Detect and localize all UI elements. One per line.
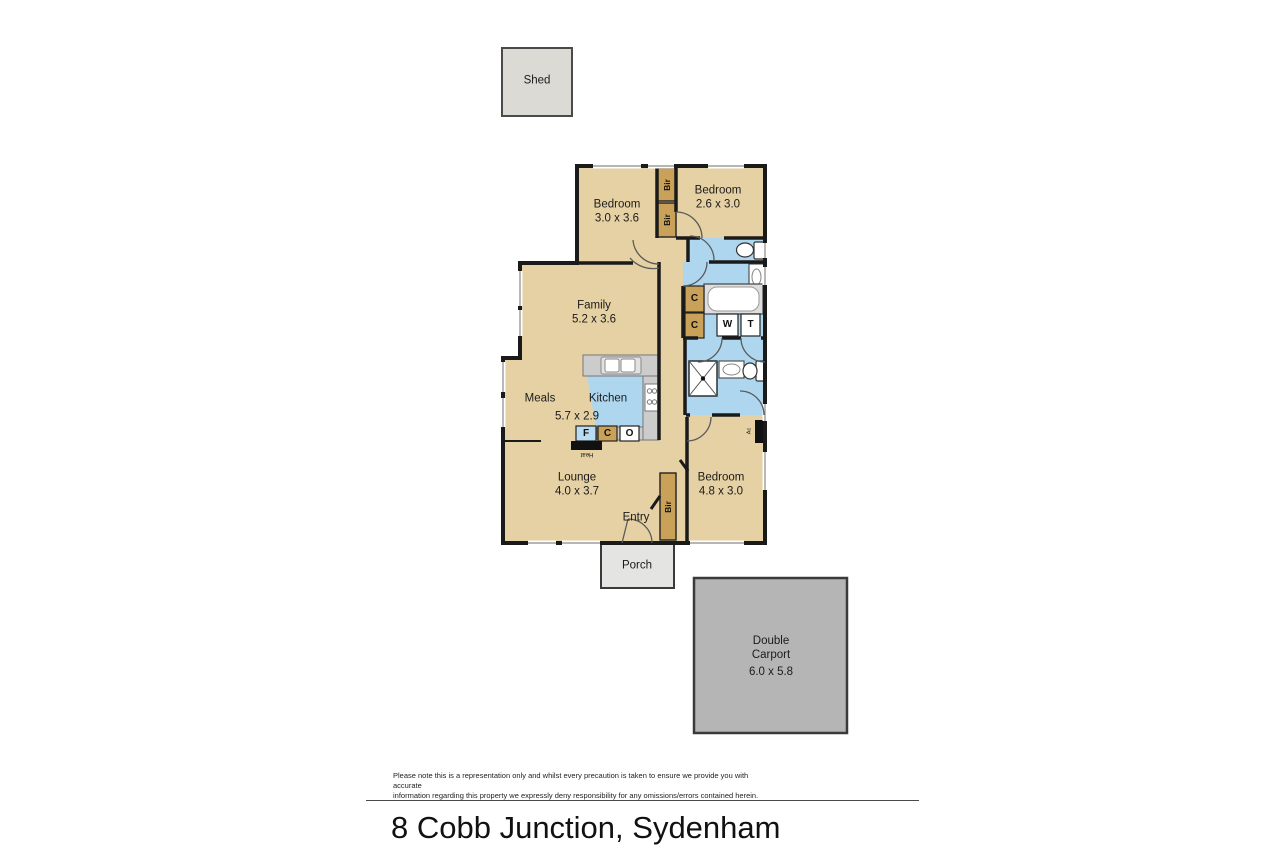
toilet-bathroom2 — [743, 361, 764, 381]
room-dims: 2.6 x 3.0 — [695, 198, 742, 212]
carport-line2: Carport — [749, 648, 793, 662]
room-name: Entry — [623, 511, 650, 525]
room-name: Kitchen — [589, 392, 627, 406]
oven-label: O — [626, 429, 634, 439]
page-title: 8 Cobb Junction, Sydenham — [391, 811, 780, 845]
room-name: Porch — [622, 559, 652, 573]
room-dims: 4.0 x 3.7 — [555, 485, 599, 499]
room-name: Bedroom — [594, 199, 641, 213]
footer-divider — [366, 800, 919, 801]
room-label-kitchen-dims: 5.7 x 2.9 — [555, 410, 599, 424]
trough-label: T — [747, 320, 753, 330]
robe-label: Bir — [662, 179, 671, 191]
shower — [689, 361, 717, 396]
heater-label: Heat — [580, 451, 593, 457]
room-label-bedroom3: Bedroom 4.8 x 3.0 — [698, 472, 745, 499]
robe-label: Bir — [664, 501, 673, 513]
room-label-kitchen: Kitchen — [589, 392, 627, 406]
room-name: Lounge — [555, 472, 599, 486]
kitchen-sink — [601, 357, 641, 374]
carport-label: Double Carport 6.0 x 5.8 — [749, 635, 793, 680]
robe-label: Bir — [662, 214, 671, 226]
floorplan-drawing — [0, 0, 1284, 856]
room-name: Meals — [525, 392, 556, 406]
shed-label: Shed — [524, 74, 551, 88]
room-name: Family — [572, 300, 616, 314]
room-label-meals: Meals — [525, 392, 556, 406]
room-dims: 4.8 x 3.0 — [698, 485, 745, 499]
cooktop — [645, 384, 658, 411]
bathtub — [704, 284, 763, 314]
disclaimer-line1: Please note this is a representation onl… — [393, 771, 773, 791]
carport-line1: Double — [749, 635, 793, 649]
room-name: Shed — [524, 74, 551, 88]
vanity-bathroom2 — [719, 361, 744, 378]
fridge-label: F — [583, 429, 589, 439]
disclaimer-text: Please note this is a representation onl… — [393, 771, 773, 801]
aircon-label: Ac — [747, 428, 753, 434]
room-label-porch: Porch — [622, 559, 652, 573]
carport-dims: 6.0 x 5.8 — [749, 666, 793, 680]
room-name: Bedroom — [695, 185, 742, 199]
room-name: Bedroom — [698, 472, 745, 486]
floorplan-page: Bedroom 3.0 x 3.6 Bedroom 2.6 x 3.0 Fami… — [0, 0, 1284, 856]
room-label-bedroom2: Bedroom 2.6 x 3.0 — [695, 185, 742, 212]
room-dims: 5.2 x 3.6 — [572, 313, 616, 327]
room-label-lounge: Lounge 4.0 x 3.7 — [555, 472, 599, 499]
washer-label: W — [723, 320, 732, 330]
room-label-bedroom1: Bedroom 3.0 x 3.6 — [594, 199, 641, 226]
room-label-family: Family 5.2 x 3.6 — [572, 300, 616, 327]
room-dims: 3.0 x 3.6 — [594, 212, 641, 226]
cupboard-label: C — [691, 294, 698, 304]
cupboard-label: C — [691, 321, 698, 331]
room-dims: 5.7 x 2.9 — [555, 410, 599, 424]
room-label-entry: Entry — [623, 511, 650, 525]
heater-unit — [571, 441, 602, 450]
cupboard-label: C — [604, 429, 611, 439]
